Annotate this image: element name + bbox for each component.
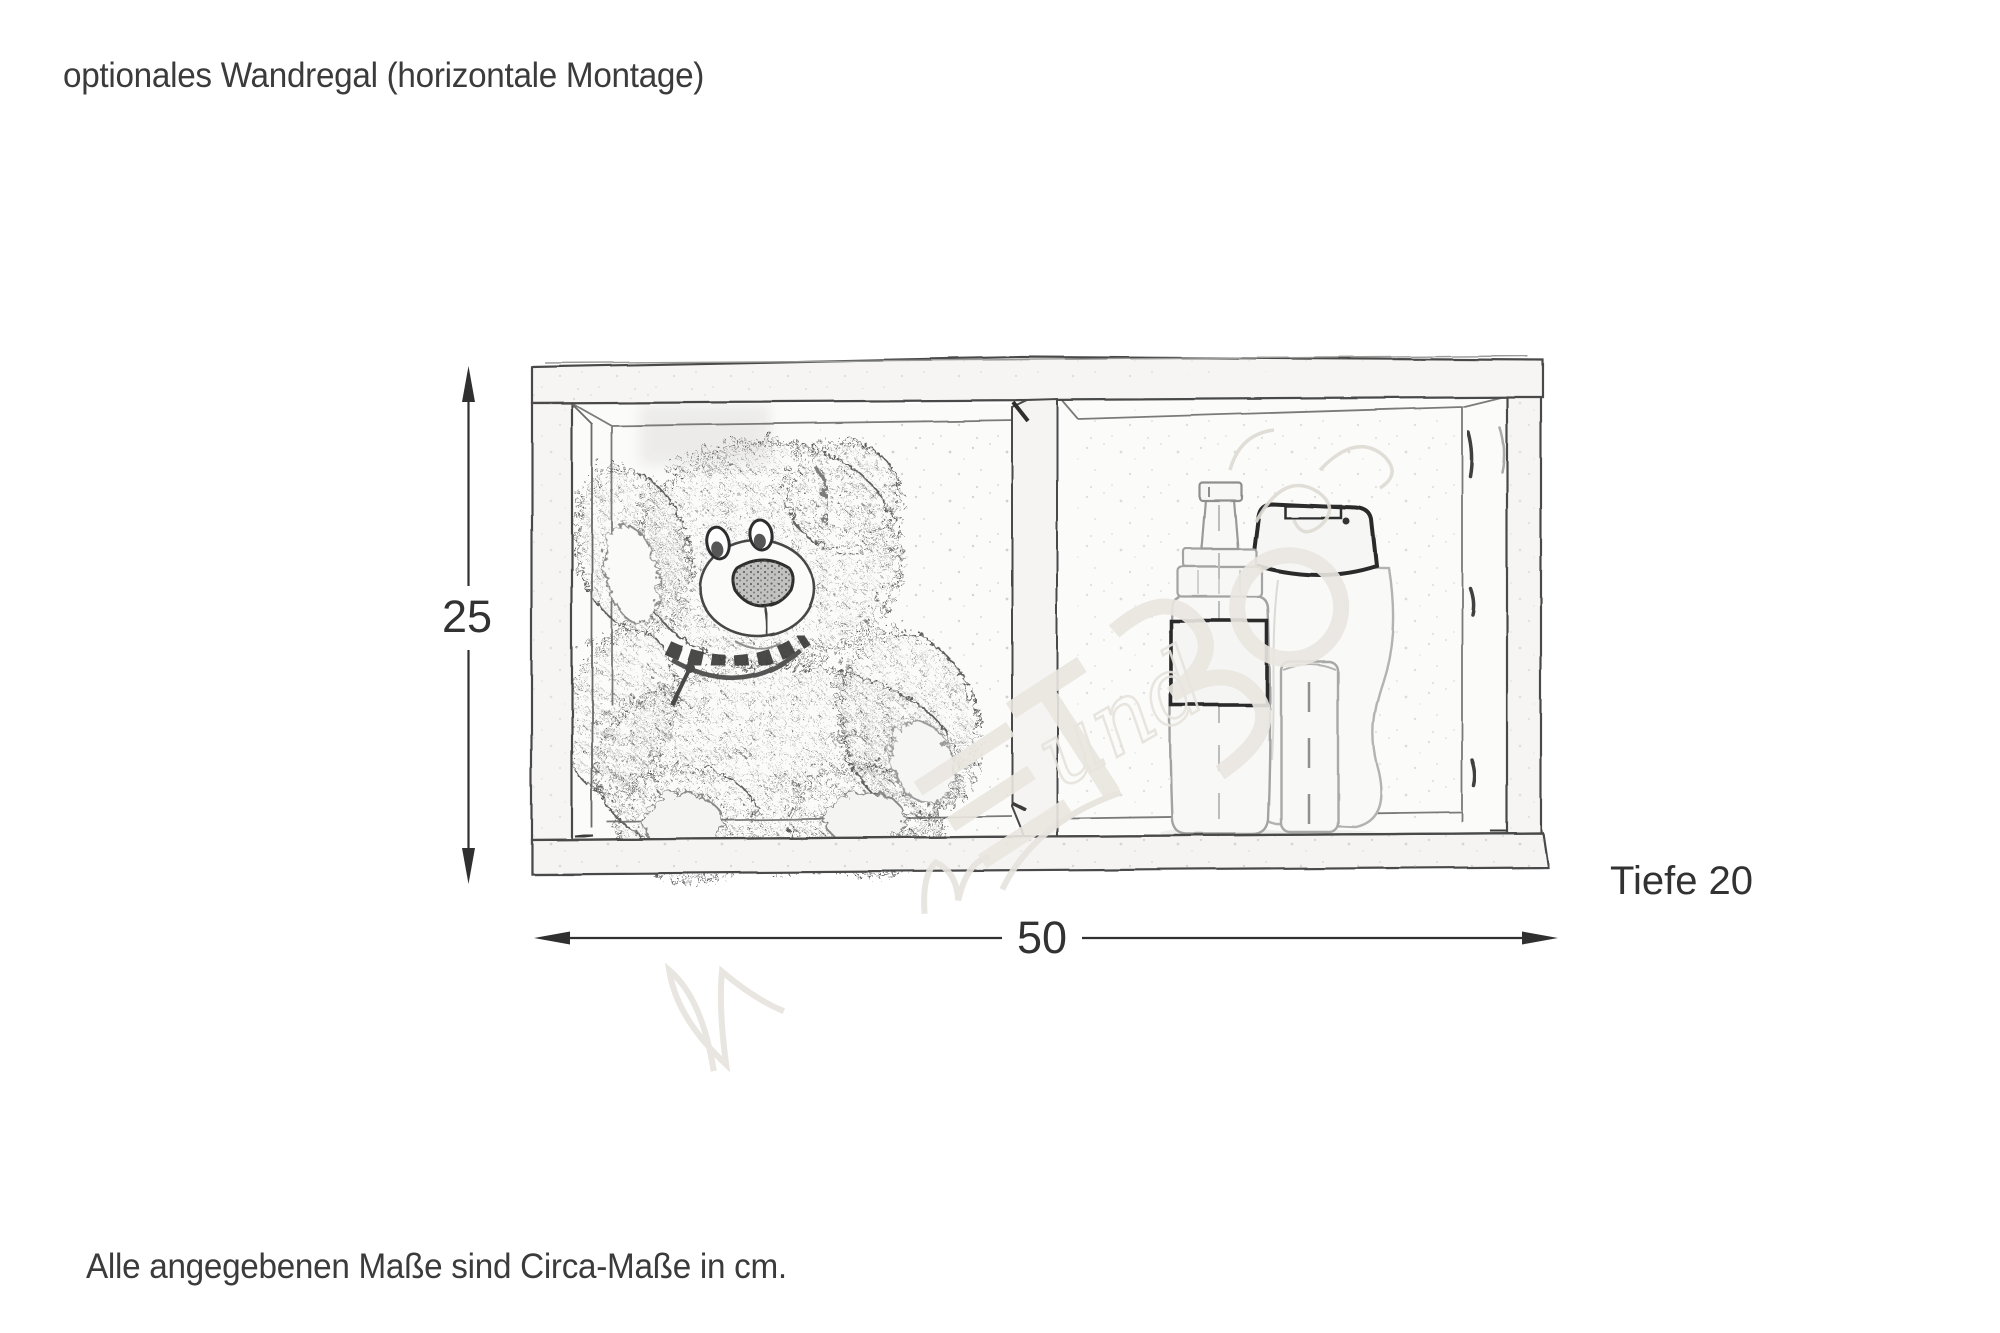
arrowhead-left-icon <box>534 932 570 945</box>
bear-right-foot-pad <box>822 789 902 843</box>
arrowhead-right-icon <box>1522 932 1558 945</box>
measurements-note: Alle angegebenen Maße sind Circa-Maße in… <box>86 1246 787 1288</box>
dimension-height: 25 <box>442 366 492 884</box>
depth-dimension-label: Tiefe 20 <box>1610 859 1753 903</box>
arrowhead-up-icon <box>462 366 475 402</box>
wall-shelf-diagram: 25 50 Tiefe 20 und <box>0 0 2000 1333</box>
height-dimension-label: 25 <box>442 591 492 642</box>
arrowhead-down-icon <box>462 848 475 884</box>
width-dimension-label: 50 <box>1017 912 1067 963</box>
small-bottle-sketch <box>1281 662 1338 832</box>
shelf-top-board <box>532 356 1543 403</box>
shelf-right-panel <box>1507 397 1541 867</box>
dimension-width: 50 <box>534 912 1558 963</box>
pump-top <box>1200 483 1242 501</box>
diagram-page: optionales Wandregal (horizontale Montag… <box>0 0 2000 1333</box>
